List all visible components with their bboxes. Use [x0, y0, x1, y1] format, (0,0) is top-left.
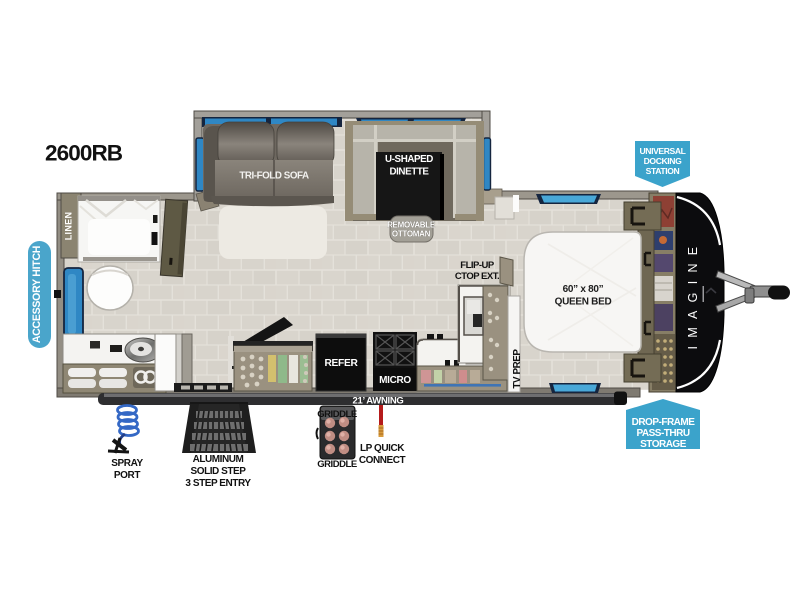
svg-text:UNIVERSAL: UNIVERSAL — [639, 146, 685, 156]
svg-text:U-SHAPED: U-SHAPED — [385, 154, 433, 165]
svg-text:21’ AWNING: 21’ AWNING — [352, 396, 403, 407]
svg-text:OTTOMAN: OTTOMAN — [392, 230, 431, 239]
svg-text:CONNECT: CONNECT — [359, 455, 406, 466]
svg-text:3 STEP ENTRY: 3 STEP ENTRY — [185, 478, 251, 489]
svg-text:REFER: REFER — [324, 358, 358, 369]
svg-text:DROP-FRAME: DROP-FRAME — [632, 417, 696, 428]
svg-text:SPRAY: SPRAY — [111, 458, 143, 469]
svg-text:IMAGINE: IMAGINE — [686, 239, 700, 350]
svg-text:REMOVABLE: REMOVABLE — [387, 221, 436, 230]
svg-text:TV PREP: TV PREP — [512, 349, 523, 389]
svg-text:PASS-THRU: PASS-THRU — [636, 428, 689, 439]
svg-text:DINETTE: DINETTE — [389, 167, 429, 178]
svg-text:GRIDDLE: GRIDDLE — [317, 459, 357, 470]
svg-text:DOCKING: DOCKING — [644, 156, 682, 166]
svg-text:LP QUICK: LP QUICK — [360, 443, 405, 454]
svg-text:ALUMINUM: ALUMINUM — [193, 454, 244, 465]
svg-text:LINEN: LINEN — [64, 212, 74, 241]
svg-text:GRIDDLE: GRIDDLE — [317, 409, 357, 420]
svg-text:STATION: STATION — [646, 166, 680, 176]
svg-text:QUEEN BED: QUEEN BED — [555, 297, 612, 308]
svg-text:STORAGE: STORAGE — [640, 439, 687, 450]
svg-text:FLIP-UP: FLIP-UP — [460, 260, 495, 271]
svg-text:MICRO: MICRO — [379, 375, 411, 386]
svg-text:2600RB: 2600RB — [45, 141, 123, 166]
svg-text:PORT: PORT — [114, 470, 140, 481]
svg-text:SOLID STEP: SOLID STEP — [191, 466, 247, 477]
svg-text:ACCESSORY HITCH: ACCESSORY HITCH — [31, 246, 43, 343]
svg-text:60” x 80”: 60” x 80” — [563, 284, 604, 295]
svg-text:CTOP EXT.: CTOP EXT. — [455, 271, 499, 282]
svg-text:TRI-FOLD SOFA: TRI-FOLD SOFA — [239, 171, 309, 182]
